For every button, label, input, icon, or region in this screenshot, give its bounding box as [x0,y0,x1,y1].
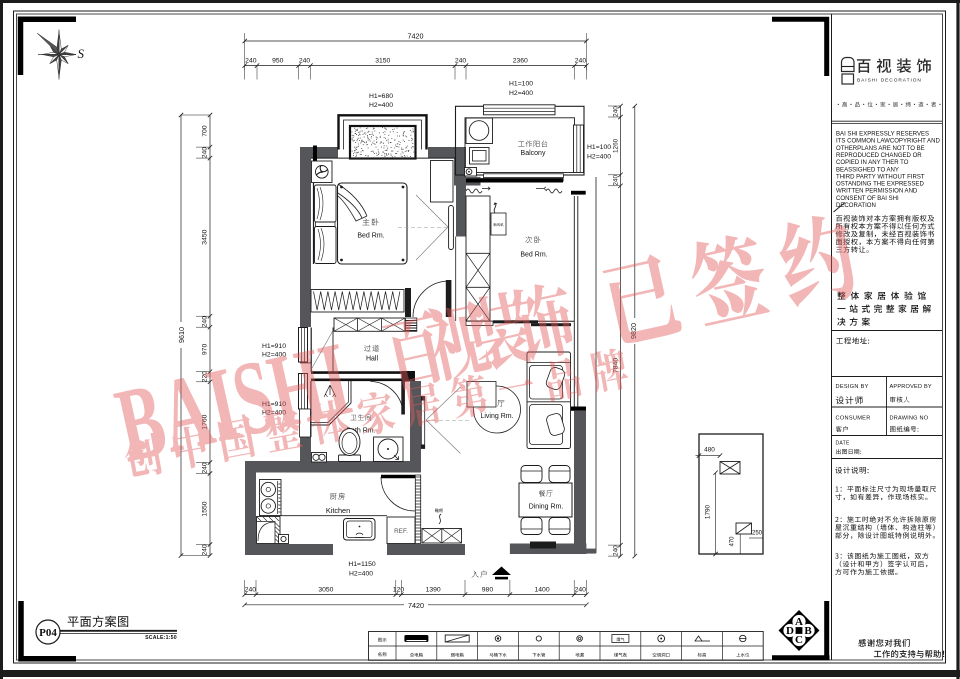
svg-text:980: 980 [482,587,494,594]
svg-text:240: 240 [575,58,587,65]
svg-text:WRITTEN PERMISSION AND: WRITTEN PERMISSION AND [836,189,918,195]
svg-text:240: 240 [613,545,620,556]
svg-text:700: 700 [202,125,209,137]
svg-text:H1=1150: H1=1150 [348,561,375,568]
svg-text:Kitchen: Kitchen [326,506,350,515]
svg-text:7420: 7420 [408,601,424,610]
svg-text:240: 240 [202,147,209,159]
svg-text:H2=400: H2=400 [509,90,533,97]
svg-text:A: A [795,616,803,628]
svg-text:BAI SHI EXPRESSLY RESERVES: BAI SHI EXPRESSLY RESERVES [836,132,929,138]
svg-text:240: 240 [613,175,620,186]
svg-text:THIRD PARTY WITHOUT FIRST: THIRD PARTY WITHOUT FIRST [836,174,925,180]
svg-text:9610: 9610 [177,327,186,343]
svg-text:DECORATION: DECORATION [836,203,876,209]
svg-text:1400: 1400 [534,587,549,594]
svg-text:240: 240 [455,58,467,65]
svg-text:BAISHI DECORATION: BAISHI DECORATION [857,78,922,84]
svg-text:1390: 1390 [426,587,441,594]
svg-text:2360: 2360 [513,58,528,65]
svg-text:DESIGN BY: DESIGN BY [836,384,869,390]
svg-text:1260: 1260 [613,138,620,153]
svg-text:P04: P04 [39,627,57,639]
svg-text:Hall: Hall [366,356,379,363]
svg-text:3450: 3450 [202,229,209,244]
svg-text:240: 240 [202,544,209,556]
svg-text:D: D [786,625,794,637]
svg-text:240: 240 [299,58,311,65]
svg-text:S: S [78,46,85,61]
svg-text:3150: 3150 [375,58,390,65]
svg-text:H1=680: H1=680 [369,93,393,100]
svg-text:3050: 3050 [318,587,333,594]
svg-text:240: 240 [613,106,620,117]
svg-text:7420: 7420 [408,32,424,41]
svg-text:470: 470 [730,536,736,547]
svg-text:120: 120 [393,587,405,594]
svg-text:250: 250 [752,531,763,537]
svg-text:OTHERPLANS ARE NOT TO BE: OTHERPLANS ARE NOT TO BE [836,146,925,152]
svg-text:ITS COMMON LAWCOPYRIGHT AND: ITS COMMON LAWCOPYRIGHT AND [836,139,940,145]
svg-text:CONSUMER: CONSUMER [836,416,871,422]
svg-text:DRAWING NO: DRAWING NO [890,416,929,422]
svg-text:240: 240 [245,58,257,65]
svg-text:DATE: DATE [836,441,851,447]
svg-text:BEASSIGHED TO ANY: BEASSIGHED TO ANY [836,167,899,173]
svg-text:SCALE:1:50: SCALE:1:50 [145,635,177,641]
svg-text:H1=100: H1=100 [509,81,533,88]
svg-text:1550: 1550 [202,501,209,516]
svg-text:Balcony: Balcony [521,150,546,157]
svg-text:Dining Rm.: Dining Rm. [529,504,564,511]
svg-text:H1=100: H1=100 [587,144,611,151]
svg-text:240: 240 [245,587,257,594]
svg-text:240: 240 [575,587,587,594]
svg-text:H2=400: H2=400 [587,154,611,161]
svg-text:CONSENT OF BAI SHI: CONSENT OF BAI SHI [836,196,899,202]
svg-text:COPIED IN ANY THER TO: COPIED IN ANY THER TO [836,160,909,166]
svg-text:1790: 1790 [705,504,712,519]
svg-text:Bed Rm.: Bed Rm. [357,233,384,240]
svg-text:REPRODUCED CHANGED OR: REPRODUCED CHANGED OR [836,153,922,159]
svg-text:C: C [795,634,803,646]
svg-text:Living Rm.: Living Rm. [480,413,513,420]
svg-text:H2=400: H2=400 [369,102,393,109]
svg-text:OSTANDING THE EXPRESSED: OSTANDING THE EXPRESSED [836,182,924,188]
svg-text:480: 480 [704,447,715,454]
svg-text:Bed Rm.: Bed Rm. [520,252,547,259]
svg-text:H2=400: H2=400 [349,571,373,578]
svg-text:B: B [804,625,812,637]
svg-text:950: 950 [272,58,284,65]
svg-text:APPROVED BY: APPROVED BY [890,384,932,390]
svg-text:REF.: REF. [394,528,408,535]
svg-text:240: 240 [202,316,209,328]
